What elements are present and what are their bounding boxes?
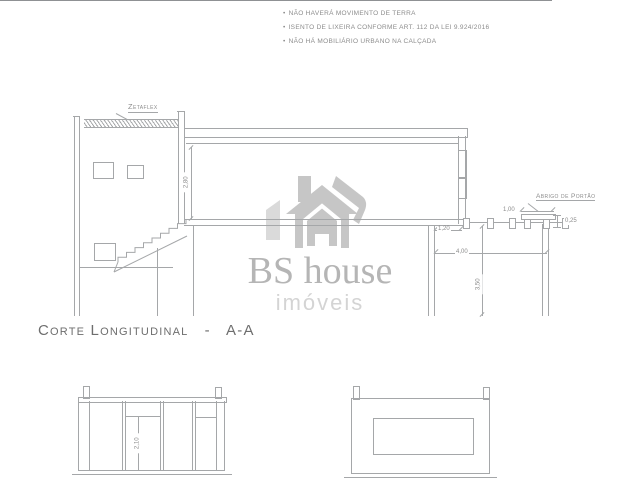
bullet-icon: • (283, 38, 286, 45)
elevation-base-line (78, 470, 225, 471)
bullet-icon: • (283, 10, 286, 17)
dim-door-height: 2,10 (135, 433, 142, 453)
dim-line-horizontal (521, 211, 554, 212)
gate-shelter-bar (521, 214, 556, 220)
gate-shelter-label: Abrigo de Portão (536, 193, 595, 201)
elevation-wall-line (195, 401, 196, 470)
fence-post (509, 218, 516, 229)
note-item: •NÃO HÁ MOBILIÁRIO URBANO NA CALÇADA (283, 39, 436, 46)
dim-line-vertical (191, 147, 192, 219)
roof-material-label: Zetaflex (128, 103, 158, 113)
note-text: ISENTO DE LIXEIRA CONFORME ART. 112 DA L… (289, 24, 490, 31)
dim-gate-shelter-height: 0,25 (564, 218, 578, 225)
dim-gate-shelter-width: 1,00 (502, 207, 516, 214)
roof-hatch-strip (84, 119, 179, 128)
wall-cap (177, 111, 185, 112)
gate-pillar (542, 224, 549, 316)
fence-post (487, 218, 494, 229)
ground-floor-right-wall (428, 225, 435, 316)
elevation-top-line (351, 398, 490, 399)
elevation-ground-line (72, 474, 232, 475)
staircase (100, 220, 200, 320)
house-logo-icon (264, 170, 376, 248)
elevation-wall-line (122, 401, 123, 470)
top-beam (78, 397, 227, 403)
window-frame (458, 178, 467, 199)
door-header-line (125, 416, 161, 417)
left-exterior-wall (74, 117, 80, 316)
floor-slab (184, 219, 464, 226)
upper-window (127, 165, 144, 179)
dim-tick (553, 227, 561, 228)
dim-line-vertical (482, 226, 483, 316)
dim-line-vertical (557, 215, 558, 227)
dim-ceiling-height: 2,80 (184, 172, 191, 192)
dim-tick (480, 312, 485, 317)
note-item: •ISENTO DE LIXEIRA CONFORME ART. 112 DA … (283, 25, 489, 32)
upper-window (93, 162, 114, 179)
elevation-ground-line (344, 477, 497, 478)
ceiling-line (186, 143, 458, 144)
note-item: •NÃO HAVERÁ MOVIMENTO DE TERRA (283, 11, 416, 18)
watermark-tagline: imóveis (276, 292, 365, 314)
watermark: BS house imóveis (228, 170, 412, 314)
blueprint-sheet: BS house imóveis 5.296/04 E NBR 9.050/20… (0, 0, 640, 480)
window-header-line (195, 417, 217, 418)
elevation-wall-line (89, 401, 90, 470)
elevation-wall-line (163, 401, 164, 470)
elevation-window (373, 418, 474, 455)
note-text: NÃO HÁ MOBILIÁRIO URBANO NA CALÇADA (289, 38, 437, 45)
stair-support-wall (157, 248, 158, 316)
wall-cap (73, 116, 80, 117)
bullet-icon: • (283, 24, 286, 31)
note-text: NÃO HAVERÁ MOVIMENTO DE TERRA (289, 10, 416, 17)
elevation-wall-line (216, 401, 217, 470)
fence-rail (464, 222, 570, 223)
watermark-brand: BS house (248, 252, 393, 290)
window-frame (458, 150, 467, 178)
note-clipped-line: 5.296/04 E NBR 9.050/20 (283, 0, 364, 3)
ground-line (0, 0, 552, 1)
understair-wall (79, 267, 173, 268)
dim-line-horizontal (435, 253, 547, 254)
dim-tick (553, 215, 561, 216)
elevation-wall-line (192, 401, 193, 470)
elevation-base-line (351, 473, 490, 474)
dim-ground-floor-height: 3,50 (476, 274, 483, 294)
partition-wall (193, 225, 194, 316)
elevation-wall-line (224, 401, 225, 470)
dim-front-yard-width: 4,00 (455, 249, 469, 256)
elevation-wall-line (489, 398, 490, 474)
elevation-wall-line (78, 401, 79, 470)
roof-slab (184, 128, 468, 138)
drawing-title: Corte Longitudinal - A-A (38, 322, 255, 339)
fence-post (463, 218, 470, 229)
dim-overhang: 1,20 (437, 226, 451, 233)
elevation-wall-line (160, 401, 161, 470)
elevation-wall-line (125, 401, 126, 470)
elevation-wall-line (351, 398, 352, 474)
